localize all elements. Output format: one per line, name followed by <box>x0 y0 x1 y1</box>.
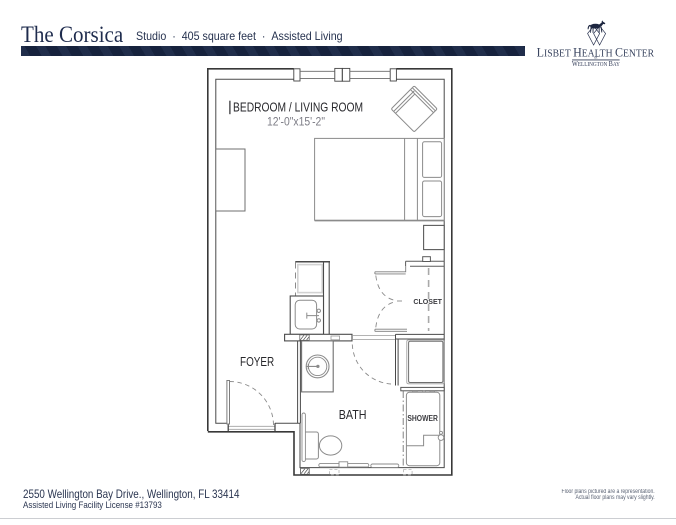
svg-text:CLOSET: CLOSET <box>413 297 442 306</box>
svg-text:FOYER: FOYER <box>240 355 274 369</box>
svg-text:BATH: BATH <box>339 408 367 422</box>
svg-text:BEDROOM / LIVING ROOM: BEDROOM / LIVING ROOM <box>233 101 363 115</box>
svg-text:12'-0"x15'-2": 12'-0"x15'-2" <box>267 114 325 128</box>
svg-text:SHOWER: SHOWER <box>407 414 438 423</box>
